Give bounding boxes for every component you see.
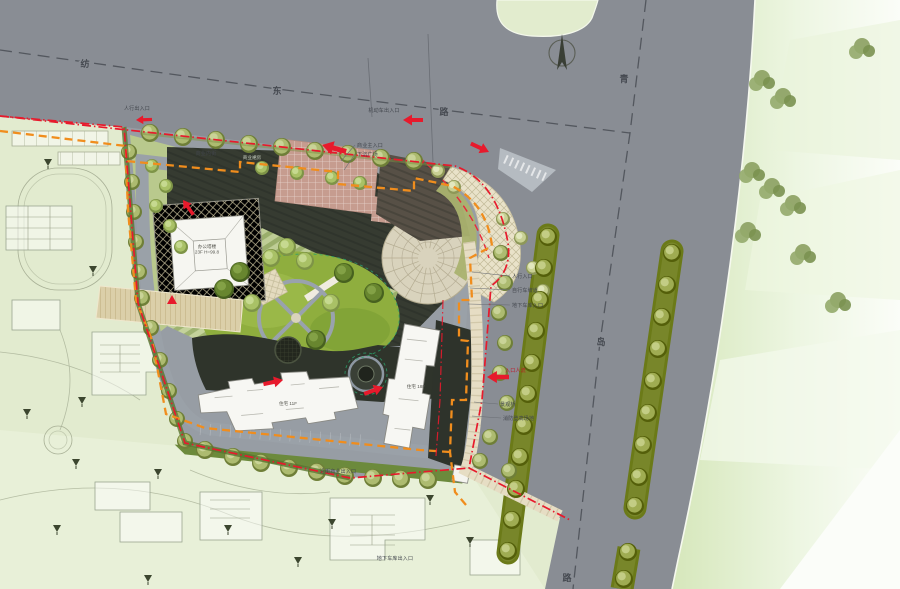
tree-icon	[497, 275, 513, 291]
context-building	[200, 492, 262, 540]
tree-icon	[615, 570, 633, 588]
tree-icon	[630, 468, 648, 486]
tree-icon	[174, 240, 188, 254]
annotation-label: 自行车坡道	[512, 287, 538, 294]
tree-icon	[482, 429, 498, 445]
tree-icon	[503, 511, 521, 529]
annotation-label: 人行出入口	[124, 105, 150, 112]
road-label: 纺	[80, 58, 89, 69]
tree-icon	[230, 262, 250, 282]
road-label: 青	[619, 73, 628, 84]
tree-icon	[493, 245, 509, 261]
road-label: 路	[439, 106, 449, 117]
road-label: 路	[562, 572, 572, 583]
context-building	[12, 300, 60, 330]
tree-icon	[663, 244, 681, 262]
road-label: 东	[272, 85, 281, 96]
spiral-ramp-core	[358, 366, 374, 382]
tree-icon	[649, 340, 667, 358]
tree-icon	[278, 238, 296, 256]
tree-icon	[535, 259, 553, 277]
tree-icon	[262, 249, 280, 267]
annotation-label: 景观桥	[500, 401, 516, 408]
site-plan-svg: 纺 东 路 青 岛 路 机动车出入口人行出入口商业主入口下沉广场商业内街人行入口…	[0, 0, 900, 589]
annotation-label: 入口人流	[505, 367, 526, 374]
building-label: 住宅 11F	[279, 400, 297, 406]
annotation-label: 机动车出入口	[368, 107, 399, 114]
tree-icon	[619, 543, 637, 561]
road-label: 岛	[596, 336, 605, 347]
annotation-label: 下沉广场	[357, 151, 378, 158]
context-building	[95, 482, 150, 510]
annotation-label: 地下车库入口	[512, 302, 543, 309]
tree-icon	[644, 372, 662, 390]
tree-icon	[243, 294, 261, 312]
tree-icon	[491, 305, 507, 321]
building-label: 商业裙房	[243, 154, 262, 161]
site-plan-canvas: 纺 东 路 青 岛 路 机动车出入口人行出入口商业主入口下沉广场商业内街人行入口…	[0, 0, 900, 589]
tree-icon	[149, 199, 163, 213]
garden-center-node	[291, 313, 301, 323]
tree-icon	[353, 176, 367, 190]
tree-icon	[539, 228, 557, 246]
tree-icon	[497, 335, 513, 351]
tree-icon	[511, 448, 529, 466]
tree-icon	[145, 159, 159, 173]
tree-icon	[306, 330, 326, 350]
annotation-label: 地下车库出入口	[377, 555, 413, 562]
tree-icon	[499, 542, 517, 560]
tree-icon	[501, 463, 517, 479]
annotation-label: 沿街商业出入口	[320, 468, 356, 475]
tree-icon	[472, 453, 488, 469]
tree-icon	[419, 471, 437, 489]
annotation-label: 消防登高场地	[503, 415, 534, 422]
building-label: 住宅 18F	[407, 383, 426, 389]
tree-icon	[527, 322, 545, 340]
tree-icon	[634, 436, 652, 454]
tree-icon	[364, 469, 382, 487]
annotation-label: 商业主入口	[357, 142, 383, 149]
tree-icon	[626, 497, 644, 515]
tree-icon	[322, 294, 340, 312]
tree-icon	[514, 231, 528, 245]
building-label: 23F H=99.8	[195, 249, 220, 254]
tree-icon	[214, 279, 234, 299]
tree-icon	[653, 308, 671, 326]
context-parking-row	[58, 152, 120, 165]
tree-icon	[163, 219, 177, 233]
tree-icon	[519, 385, 537, 403]
tree-icon	[334, 263, 354, 283]
context-building	[120, 512, 182, 542]
sunken-disc-feature	[275, 337, 301, 363]
tree-icon	[658, 276, 676, 294]
tree-icon	[296, 252, 314, 270]
tree-icon	[639, 404, 657, 422]
annotation-label: 人行入口	[512, 273, 533, 280]
tree-icon	[159, 179, 173, 193]
annotation-label: 商业内街	[196, 150, 217, 157]
tree-icon	[364, 283, 384, 303]
